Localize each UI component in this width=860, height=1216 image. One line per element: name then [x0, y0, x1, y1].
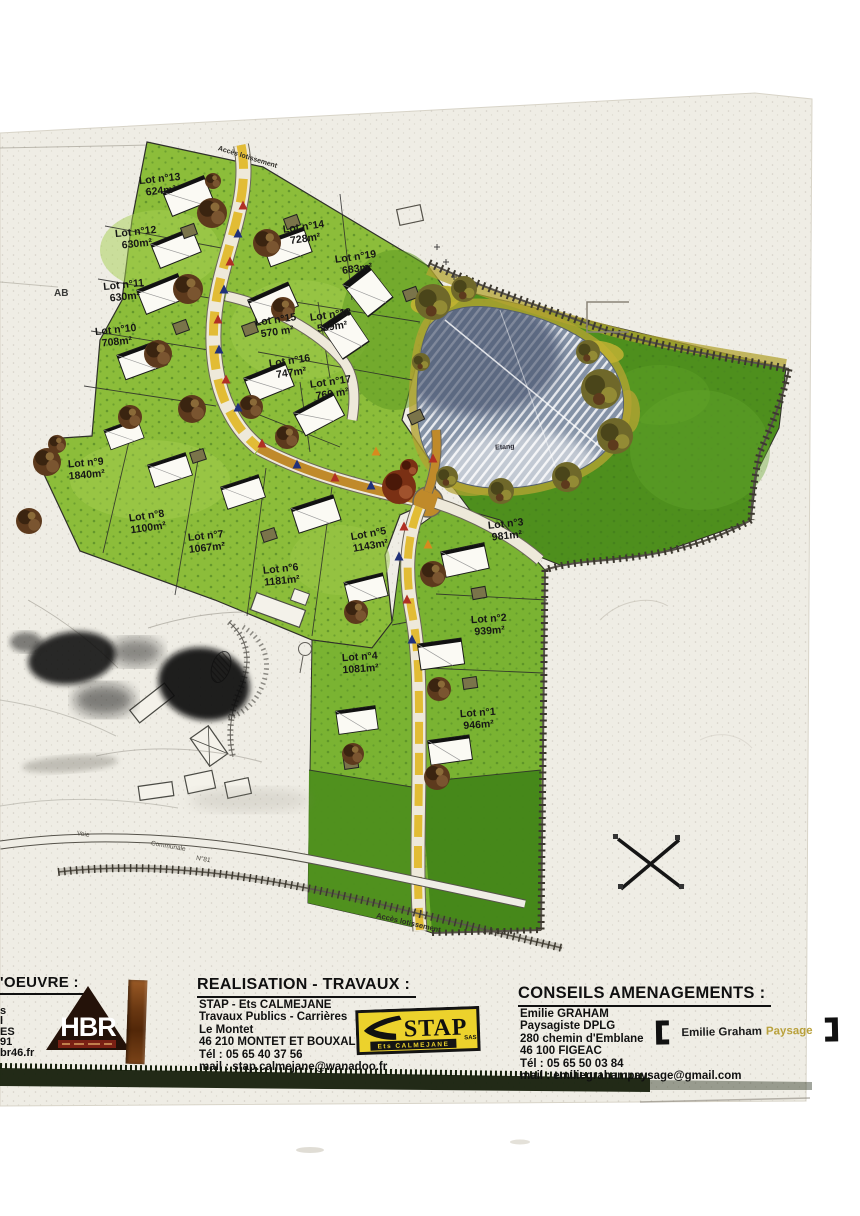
graham-bracket-left-icon	[656, 1020, 669, 1044]
graham-logo-text: Emilie GrahamPaysage	[681, 1025, 812, 1039]
svg-text:946m²: 946m²	[463, 718, 495, 732]
lot-label-3: Lot n°3981m²	[487, 516, 525, 544]
stap-logo: STAP SAS Ets CALMEJANE	[355, 1006, 483, 1060]
graham-bracket-right-icon	[825, 1017, 838, 1041]
realisation-line: mail : stap.calmejane@wanadoo.fr	[199, 1061, 387, 1073]
conseils-line: 46 100 FIGEAC	[520, 1045, 742, 1057]
lot-label-11: Lot n°11630m²	[103, 277, 146, 305]
conseils-line: Tél : 05 65 50 03 84	[520, 1058, 742, 1070]
stap-logo-sas: SAS	[464, 1035, 477, 1041]
scanned-subdivision-plan: Etang	[0, 0, 860, 1216]
svg-text:1081m²: 1081m²	[342, 662, 379, 677]
realisation-title: REALISATION - TRAVAUX :	[197, 976, 416, 998]
lot-label-1: Lot n°1946m²	[460, 706, 497, 732]
lot-label-4: Lot n°41081m²	[341, 650, 379, 677]
svg-text:939m²: 939m²	[474, 624, 506, 638]
graham-logo: Emilie GrahamPaysage	[652, 1014, 842, 1047]
bottom-margin-marks	[296, 1140, 530, 1154]
section-label: AB	[54, 288, 68, 299]
lot-label-2: Lot n°2939m²	[471, 612, 508, 638]
lot-label-7: Lot n°71067m²	[187, 528, 226, 556]
stap-logo-main: STAP	[403, 1014, 467, 1042]
conseils-line: mail : emiliegrahampaysage@gmail.com	[520, 1070, 742, 1082]
meadow-south-east	[421, 770, 541, 933]
pond-label: Etang	[495, 443, 515, 451]
meadow-south-west	[308, 770, 418, 928]
lot-label-6: Lot n°61181m²	[262, 561, 300, 589]
wood-plank-graphic	[126, 980, 148, 1065]
lot-label-9: Lot n°91840m²	[67, 455, 106, 482]
hbr-logo-text: HBR	[60, 1012, 116, 1042]
lot-label-8: Lot n°81100m²	[128, 508, 167, 537]
conseils-title: CONSEILS AMENAGEMENTS :	[518, 984, 771, 1007]
